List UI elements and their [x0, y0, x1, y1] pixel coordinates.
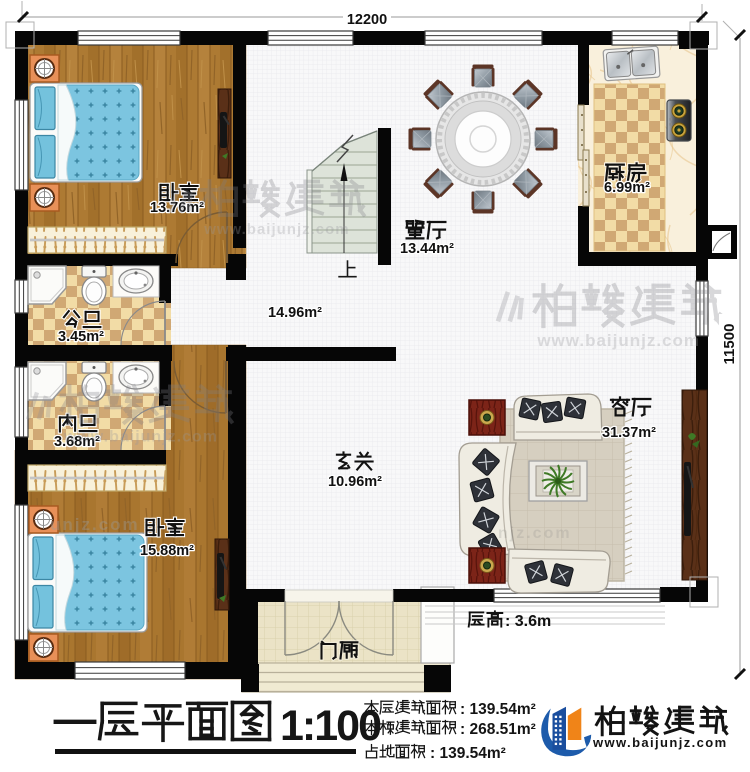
svg-text:13.44m²: 13.44m²: [400, 241, 454, 257]
svg-text:www.baijunjz.com: www.baijunjz.com: [536, 331, 700, 350]
svg-text:: 139.54m²: : 139.54m²: [460, 701, 536, 718]
svg-text:13.76m²: 13.76m²: [150, 200, 204, 216]
svg-text:: 139.54m²: : 139.54m²: [430, 745, 506, 762]
svg-text:www.baijunjz.com: www.baijunjz.com: [203, 221, 349, 238]
svg-text:3.45m²: 3.45m²: [58, 329, 104, 345]
svg-text:14.96m²: 14.96m²: [268, 305, 322, 321]
svg-text:www.baijunjz.com: www.baijunjz.com: [592, 735, 728, 750]
svg-text:11500: 11500: [721, 324, 738, 365]
svg-text:10.96m²: 10.96m²: [328, 474, 382, 490]
svg-text:1:100: 1:100: [280, 702, 381, 750]
svg-text:15.88m²: 15.88m²: [140, 543, 194, 559]
svg-text:31.37m²: 31.37m²: [602, 425, 656, 441]
svg-text:12200: 12200: [347, 12, 387, 28]
svg-text:www.baijunjz.com: www.baijunjz.com: [63, 429, 218, 446]
svg-text:: 268.51m²: : 268.51m²: [460, 721, 536, 738]
svg-text:: 3.6m: : 3.6m: [505, 613, 551, 630]
svg-text:6.99m²: 6.99m²: [604, 180, 650, 196]
svg-text:njz.com: njz.com: [498, 525, 572, 542]
svg-text:unjz.com: unjz.com: [50, 515, 140, 534]
